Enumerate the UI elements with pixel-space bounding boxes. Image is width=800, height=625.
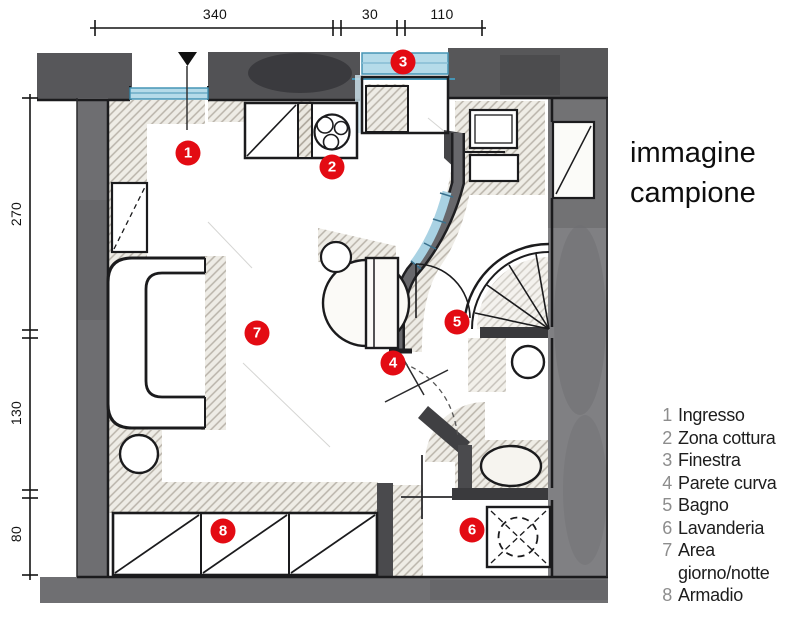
legend-item-bagno: 5 Bagno bbox=[659, 494, 776, 517]
legend-label: Lavanderia bbox=[678, 517, 764, 540]
watermark-line1: immagine bbox=[630, 133, 756, 173]
legend-num: 8 bbox=[659, 584, 672, 607]
side-table bbox=[120, 435, 158, 473]
legend-item-finestra: 3 Finestra bbox=[659, 449, 776, 472]
dim-left-130: 130 bbox=[8, 401, 24, 425]
dim-top-30: 30 bbox=[362, 6, 378, 22]
legend-item-armadio: 8 Armadio bbox=[659, 584, 776, 607]
wall-divider bbox=[377, 483, 393, 577]
legend-item-area-giorno-notte: 7 Area giorno/notte bbox=[659, 539, 776, 584]
kitchen-counter bbox=[245, 103, 357, 158]
wall-bath-door bbox=[480, 327, 548, 338]
wall-top-left bbox=[37, 53, 132, 100]
legend-label: Armadio bbox=[678, 584, 743, 607]
wall-bath-bottom bbox=[452, 488, 548, 500]
legend-num: 7 bbox=[659, 539, 672, 584]
left-shelf bbox=[112, 183, 147, 252]
wardrobe bbox=[113, 513, 377, 575]
legend-num: 4 bbox=[659, 472, 672, 495]
wall-left bbox=[77, 98, 108, 580]
dim-top-110: 110 bbox=[430, 6, 453, 22]
marker-6-lavanderia: 6 bbox=[460, 518, 485, 543]
dim-top-340: 340 bbox=[203, 6, 227, 22]
legend-num: 1 bbox=[659, 404, 672, 427]
marker-5-bagno: 5 bbox=[445, 310, 470, 335]
legend-num: 5 bbox=[659, 494, 672, 517]
bath-tub-oval bbox=[481, 446, 541, 486]
legend-num: 6 bbox=[659, 517, 672, 540]
legend: 1 Ingresso 2 Zona cottura 3 Finestra 4 P… bbox=[659, 404, 776, 607]
legend-label: Zona cottura bbox=[678, 427, 775, 450]
laundry-machine bbox=[487, 507, 550, 567]
legend-num: 2 bbox=[659, 427, 672, 450]
marker-2-zona-cottura: 2 bbox=[320, 155, 345, 180]
legend-item-ingresso: 1 Ingresso bbox=[659, 404, 776, 427]
watermark-text: immagine campione bbox=[630, 133, 756, 213]
dim-left-80: 80 bbox=[8, 526, 24, 542]
legend-label: Finestra bbox=[678, 449, 741, 472]
legend-label: Parete curva bbox=[678, 472, 776, 495]
bath-sink bbox=[512, 346, 544, 378]
sofa bbox=[108, 258, 205, 428]
marker-3-finestra: 3 bbox=[391, 50, 416, 75]
legend-item-lavanderia: 6 Lavanderia bbox=[659, 517, 776, 540]
floor-plan-page: 340 30 110 270 130 80 1 2 3 4 5 6 7 8 im… bbox=[0, 0, 800, 625]
legend-item-parete-curva: 4 Parete curva bbox=[659, 472, 776, 495]
marker-1-ingresso: 1 bbox=[176, 141, 201, 166]
marker-8-armadio: 8 bbox=[211, 519, 236, 544]
legend-item-zona-cottura: 2 Zona cottura bbox=[659, 427, 776, 450]
marker-4-parete-curva: 4 bbox=[381, 351, 406, 376]
marker-7-area-giorno: 7 bbox=[245, 321, 270, 346]
round-table-unit bbox=[321, 242, 409, 348]
legend-label: Area giorno/notte bbox=[678, 539, 769, 584]
legend-label: Bagno bbox=[678, 494, 729, 517]
watermark-line2: campione bbox=[630, 173, 756, 213]
legend-num: 3 bbox=[659, 449, 672, 472]
legend-label: Ingresso bbox=[678, 404, 745, 427]
dim-left-270: 270 bbox=[8, 202, 24, 226]
